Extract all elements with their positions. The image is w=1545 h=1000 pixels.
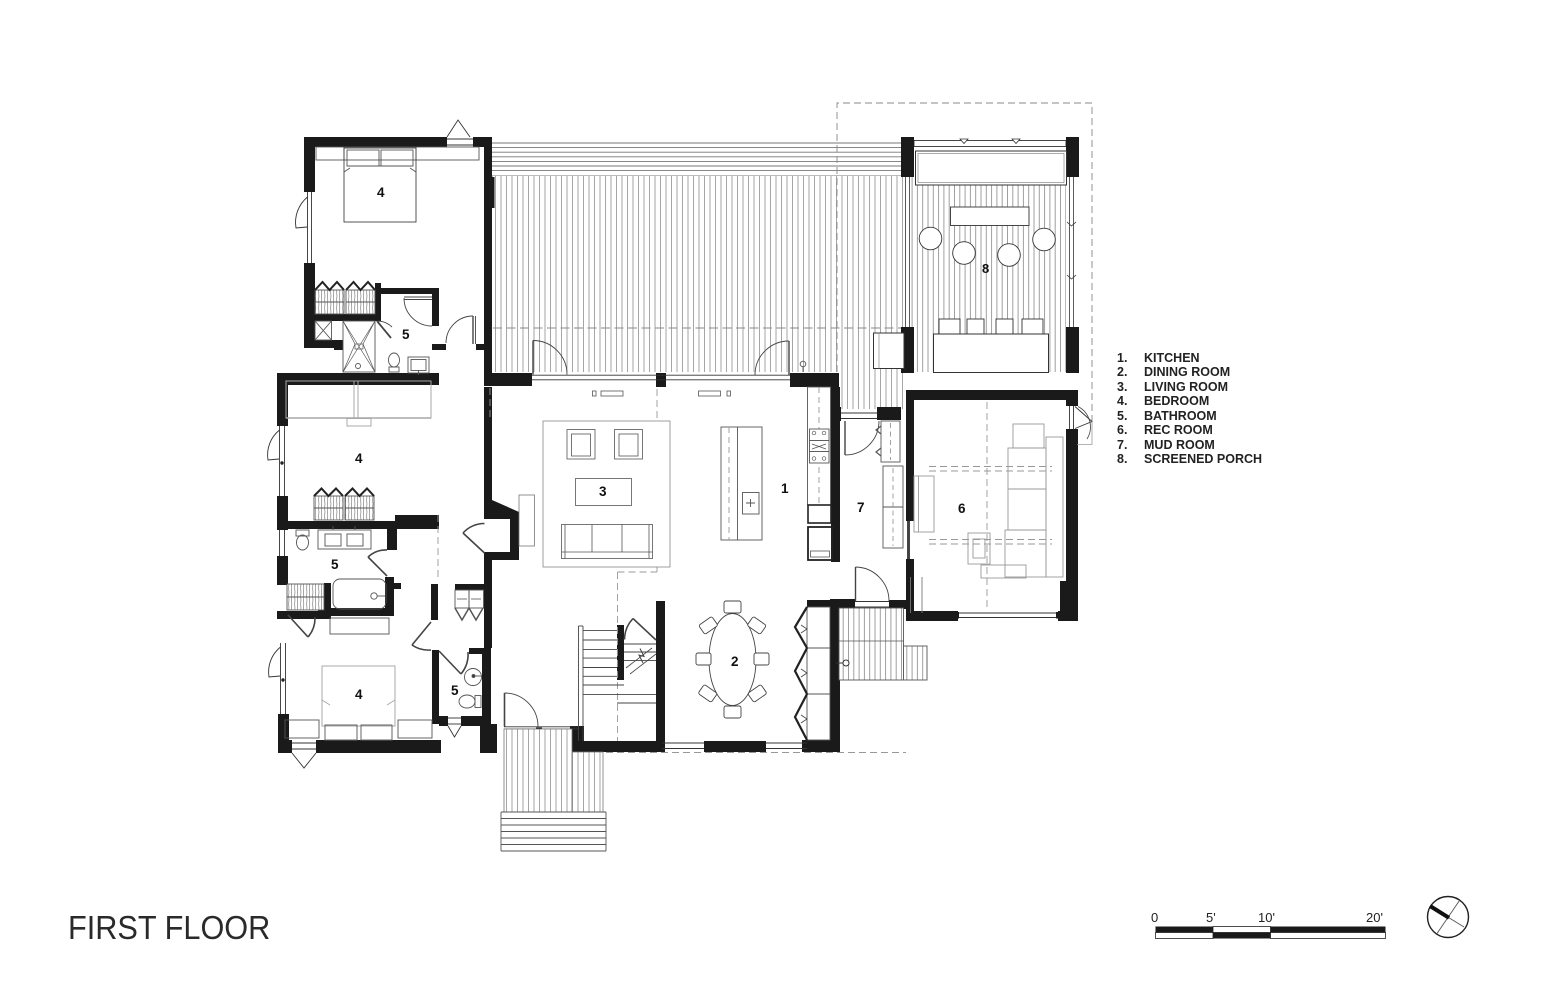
svg-text:3: 3 xyxy=(599,484,607,499)
svg-text:6: 6 xyxy=(958,501,966,516)
svg-text:5': 5' xyxy=(1206,910,1216,925)
svg-text:4: 4 xyxy=(377,185,385,200)
svg-text:5: 5 xyxy=(451,683,459,698)
svg-text:0: 0 xyxy=(1151,910,1158,925)
svg-text:10': 10' xyxy=(1258,910,1275,925)
svg-text:4: 4 xyxy=(355,687,363,702)
svg-text:2: 2 xyxy=(731,654,739,669)
svg-text:5: 5 xyxy=(402,327,410,342)
svg-text:8: 8 xyxy=(982,261,989,276)
svg-text:5: 5 xyxy=(331,557,339,572)
svg-text:4: 4 xyxy=(355,451,363,466)
svg-text:7: 7 xyxy=(857,500,865,515)
svg-text:1: 1 xyxy=(781,481,789,496)
svg-text:20': 20' xyxy=(1366,910,1383,925)
